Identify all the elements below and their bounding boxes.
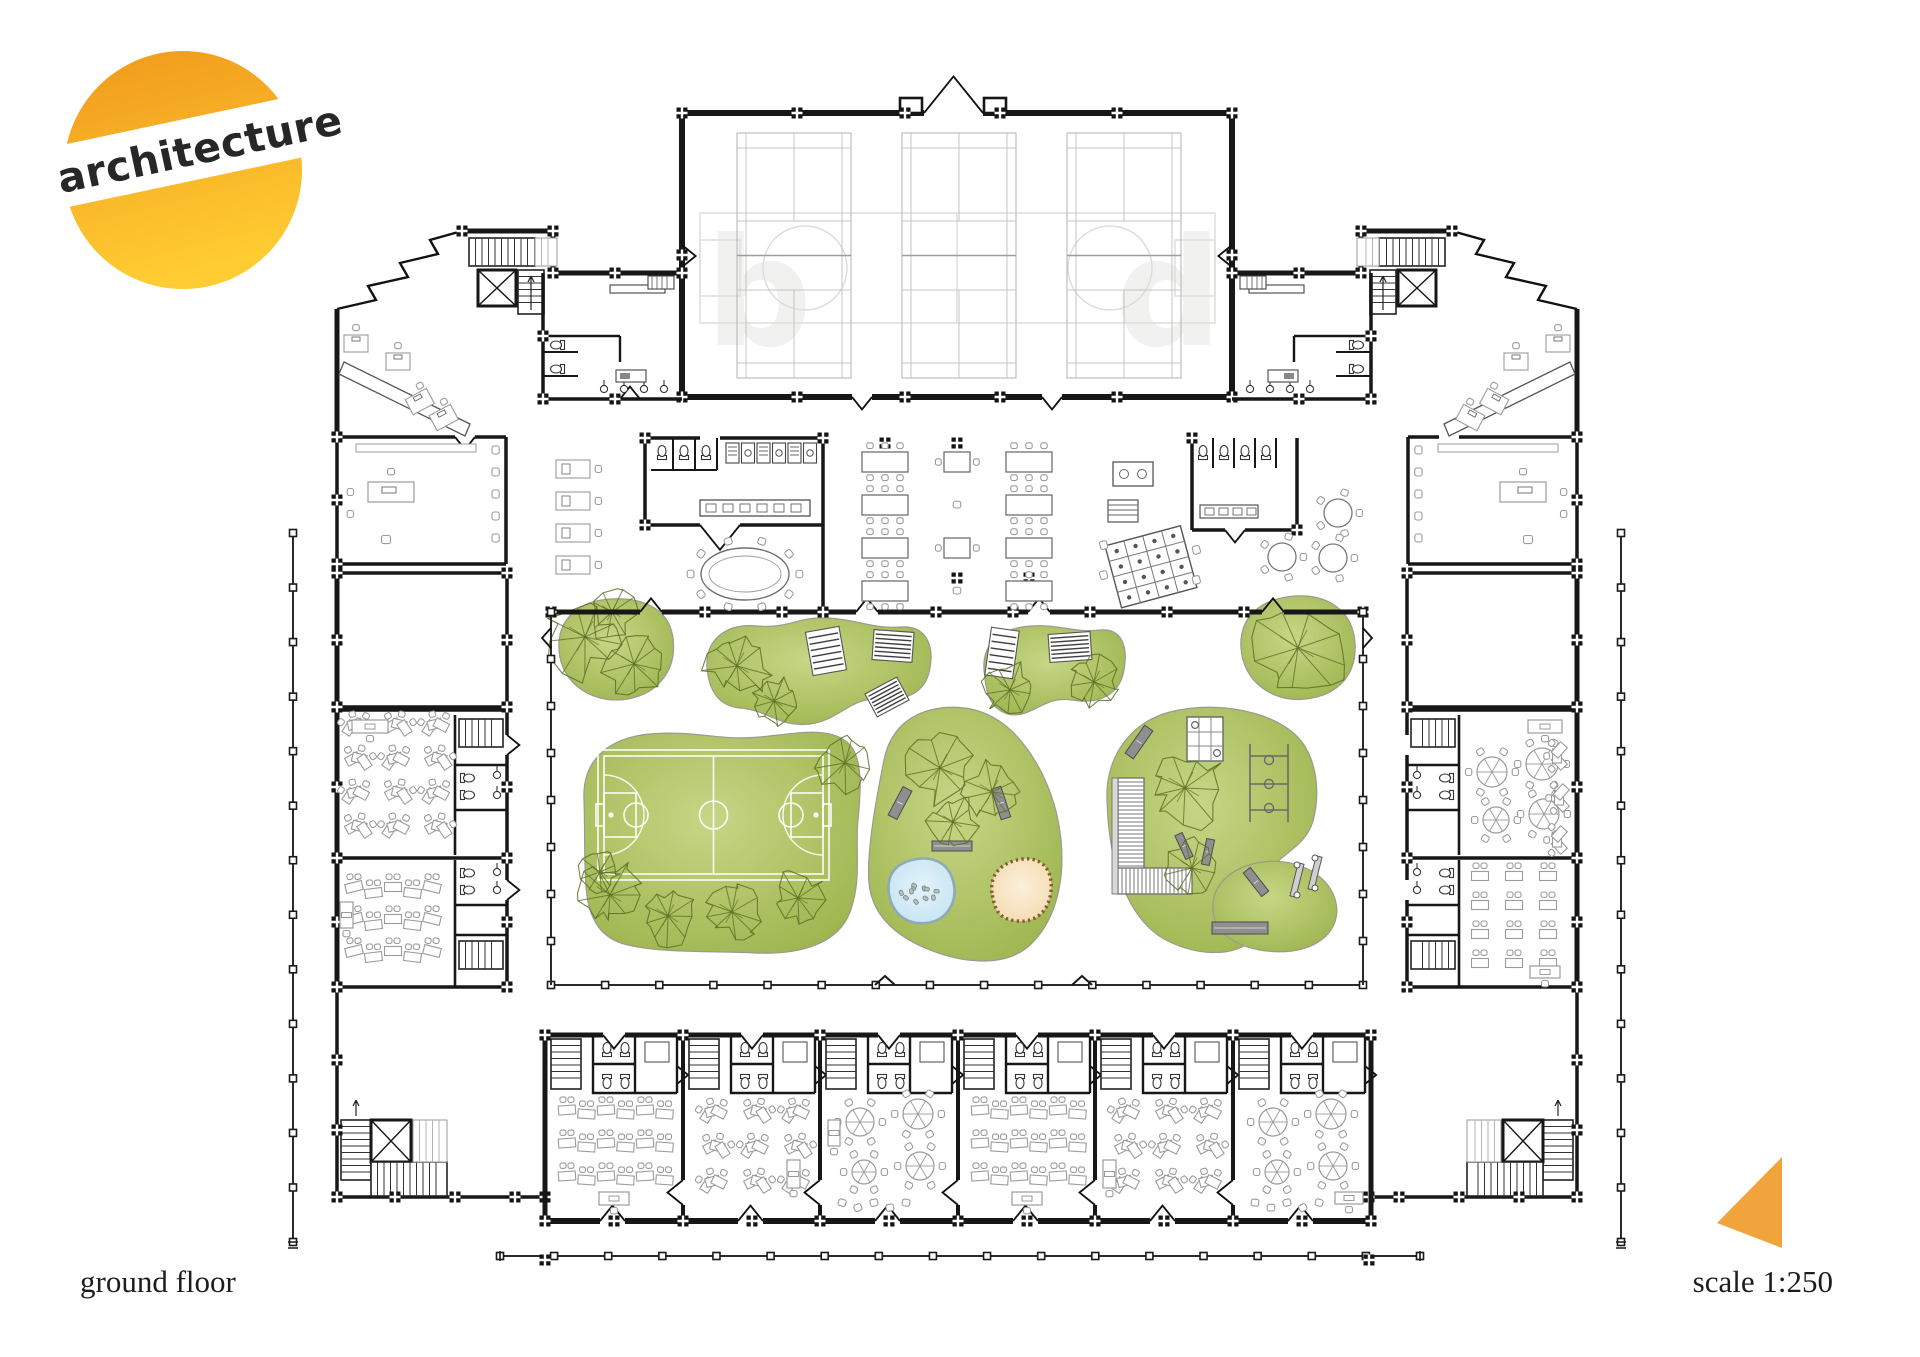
desk-cluster [1148,1133,1181,1159]
toilet-icon [878,1043,887,1057]
teacher-desk [1528,720,1562,742]
desk-pair [1069,1134,1087,1152]
dining-table [862,443,908,481]
elevator [478,270,516,306]
toilet-icon [603,1075,612,1089]
sink-icon [493,863,500,876]
classroom-rows [971,1097,1086,1214]
stair [826,1039,856,1089]
group-table [1254,1150,1301,1194]
group-table [1466,747,1519,796]
classroom-groups [1103,1098,1229,1197]
desk-pair [1010,1163,1028,1181]
desk-pair [558,1163,576,1181]
toilet-icon [1291,1043,1300,1057]
pond [889,859,955,924]
teacher-desk [1530,966,1560,987]
desk-cluster [777,1098,810,1124]
reception [339,325,470,436]
desk-pair [1506,921,1523,939]
toilet-icon [702,446,711,460]
sink-icon [660,380,667,393]
picnic-mat [805,626,846,675]
desk-pair [991,1167,1009,1185]
desk-pair [385,906,402,924]
group-table [895,1142,946,1190]
round-table [1316,489,1362,538]
stair [535,238,557,266]
stair [1239,1039,1269,1089]
toilet-icon [759,1043,768,1057]
round-table [1311,534,1357,583]
desk-pair [404,880,422,899]
desk-pair [1030,1134,1048,1152]
group-table [1472,797,1521,843]
dining-table [862,486,908,524]
desk-pair [1540,892,1557,910]
floor-label: ground floor [80,1264,237,1299]
desk-pair [656,1101,674,1119]
desk-pair [1472,950,1489,968]
desk-pair [404,912,422,931]
toilet-icon [1016,1043,1025,1057]
svg-text:d: d [1115,207,1222,381]
desk-pair [636,1130,654,1148]
stair [551,1039,581,1089]
desk-pair [578,1134,596,1152]
group-table [1308,1142,1359,1190]
desk-pair [1049,1130,1067,1148]
svg-text:b: b [705,207,812,381]
desk-cluster [377,813,410,839]
desk-pair [971,1163,989,1181]
desk-pair [656,1167,674,1185]
classroom-rounds [1248,1089,1364,1212]
elevator [371,1120,411,1162]
toilet-icon [1220,446,1229,460]
desk-pair [597,1130,615,1148]
toilet-icon [1153,1075,1162,1089]
dining-hall [862,443,1052,610]
desk-pair [345,873,364,893]
play-mat [1099,526,1201,608]
desk-cluster [1155,1168,1188,1194]
floor-plan-drawing: architecture ground floor scale 1:250 bd [0,0,1920,1357]
desk-pair [423,873,442,893]
toilet-icon [1034,1075,1043,1089]
lawn-pond [869,707,1062,961]
teacher-desk [1103,1160,1116,1197]
hall-underlay: bd [700,207,1222,381]
scale-label: scale 1:250 [1693,1264,1833,1299]
group-table [1248,1098,1299,1146]
toilet-icon [1291,1075,1300,1089]
toilet-icon [1016,1075,1025,1089]
toilet-icon [1241,446,1250,460]
teacher-desk [828,1120,840,1155]
group-table [1305,1089,1358,1138]
toilet-icon [1199,446,1208,460]
desk-pair [1030,1101,1048,1119]
presentation-sheet: architecture ground floor scale 1:250 bd [0,0,1920,1357]
lawn [984,626,1125,715]
toilet-icon [1309,1043,1318,1057]
toilet-icon [551,341,565,350]
stair [1101,1039,1131,1089]
desk-pair [971,1097,989,1115]
workstations [556,460,602,574]
picnic-mat [985,627,1019,678]
toilet-icon [759,1075,768,1089]
desk-pair [991,1101,1009,1119]
desk-pair [1010,1130,1028,1148]
desk-pair [1030,1167,1048,1185]
office [347,444,499,544]
desk-cluster [417,711,450,737]
desk-pair [636,1097,654,1115]
desk-pair [365,880,383,899]
toilet-icon [461,869,475,878]
stair [964,1039,994,1089]
desk-pair [423,905,442,925]
teacher-desk [599,1192,629,1214]
bench [1212,922,1268,934]
desk-pair [991,1134,1009,1152]
toilet-icon [461,791,475,800]
desk-cluster [695,1098,728,1124]
desk-pair [1069,1101,1087,1119]
desk-cluster [1196,1133,1229,1159]
stair [371,1162,447,1196]
sink-icon [493,786,500,799]
classroom-groups [695,1098,818,1197]
desk-pair [385,938,402,956]
desk-pair [1540,863,1557,881]
courtyard [548,589,1355,961]
desk-pair [636,1163,654,1181]
classroom-rows [558,1097,673,1214]
dining-table [1006,529,1052,567]
desk-pair [578,1167,596,1185]
toilet-icon [896,1075,905,1089]
toilet-icon [680,446,689,460]
desk-pair [1506,950,1523,968]
picnic-mat [872,630,914,663]
desk-pair [1472,863,1489,881]
lawn [707,618,931,725]
lawn-sports [584,732,860,953]
toilet-icon [551,365,565,374]
desk-cluster [702,1133,735,1159]
desk-pair [971,1130,989,1148]
stair [341,1120,371,1180]
toilet-icon [1262,446,1271,460]
desk-pair [597,1097,615,1115]
sink-icon [493,766,500,779]
playroom [1099,446,1362,608]
dining-table [1006,486,1052,524]
desk-pair [1049,1097,1067,1115]
dining-table [862,572,908,610]
desk-cluster [1155,1098,1188,1124]
toilet-icon [878,1075,887,1089]
desk-pair [365,944,383,963]
desk-cluster [1114,1133,1147,1159]
desk-pair [385,874,402,892]
stair [459,941,503,969]
desk-pair [1069,1167,1087,1185]
right-wing-classrooms [1466,720,1571,987]
sandpit [992,859,1052,921]
dining-table [1006,572,1052,610]
toilet-icon [1309,1075,1318,1089]
desk-pair [1010,1097,1028,1115]
group-table [841,1150,888,1194]
logo: architecture [17,51,353,289]
group-table [892,1089,945,1138]
desk-pair [1540,950,1557,968]
round-table [1260,533,1306,582]
toilet-icon [603,1043,612,1057]
plan-graphics: bd [288,76,1626,1265]
sink-icon [600,380,607,393]
dining-table [862,529,908,567]
toilet-icon [1171,1043,1180,1057]
sink-icon [493,881,500,894]
toilet-icon [461,774,475,783]
desk-cluster [384,779,417,805]
desk-pair [1472,892,1489,910]
toilet-icon [741,1043,750,1057]
desk-pair [617,1167,635,1185]
desk-cluster [344,813,377,839]
desk-pair [1506,863,1523,881]
group-table [835,1098,886,1146]
dining-table [1006,443,1052,481]
desk-cluster [736,1133,769,1159]
desk-pair [558,1097,576,1115]
toilet-icon [741,1075,750,1089]
desk-pair [1472,921,1489,939]
desk-pair [404,944,422,963]
desk-pair [365,912,383,931]
dining-table [935,452,979,472]
desk-cluster [377,745,410,771]
stair [689,1039,719,1089]
left-wing-classrooms [337,711,457,963]
desk-pair [1540,921,1557,939]
desk-cluster [695,1168,728,1194]
desk-pair [423,937,442,957]
classroom-rounds [828,1089,946,1212]
teacher-desk [352,720,388,742]
desk-cluster [743,1098,776,1124]
desk-pair [1506,892,1523,910]
desk-cluster [1189,1098,1222,1124]
toilet-icon [896,1043,905,1057]
desk-pair [597,1163,615,1181]
meeting-table [687,537,803,611]
stair [469,238,535,266]
desk-cluster [384,711,417,737]
desk-pair [558,1130,576,1148]
desk-pair [345,937,364,957]
bottom-classrooms [540,1030,1377,1227]
badminton-court [902,133,1016,378]
teacher-desk [1012,1192,1042,1214]
desk-cluster [424,745,457,771]
desk-pair [578,1101,596,1119]
desk-cluster [417,779,450,805]
desk-pair [1049,1163,1067,1181]
dining-table [935,538,979,558]
toilet-icon [621,1043,630,1057]
scale-triangle-icon [1717,1157,1782,1248]
toilet-icon [1153,1043,1162,1057]
desk-pair [656,1134,674,1152]
stair [413,1120,447,1162]
desk-pair [617,1134,635,1152]
stair [459,719,503,747]
teacher-desk [340,902,353,937]
toilet-icon [658,446,667,460]
desk-cluster [743,1168,776,1194]
toilet-icon [621,1075,630,1089]
desk-cluster [344,745,377,771]
toilet-icon [461,886,475,895]
desk-cluster [784,1133,817,1159]
toilet-icon [1171,1075,1180,1089]
desk-cluster [424,813,457,839]
desk-cluster [1189,1168,1222,1194]
picnic-mat [1048,632,1092,663]
desk-pair [617,1101,635,1119]
toilet-icon [1034,1043,1043,1057]
courtyard-walkway-edge [542,609,555,986]
desk-cluster [1107,1098,1140,1124]
teacher-desk [1335,1192,1363,1213]
